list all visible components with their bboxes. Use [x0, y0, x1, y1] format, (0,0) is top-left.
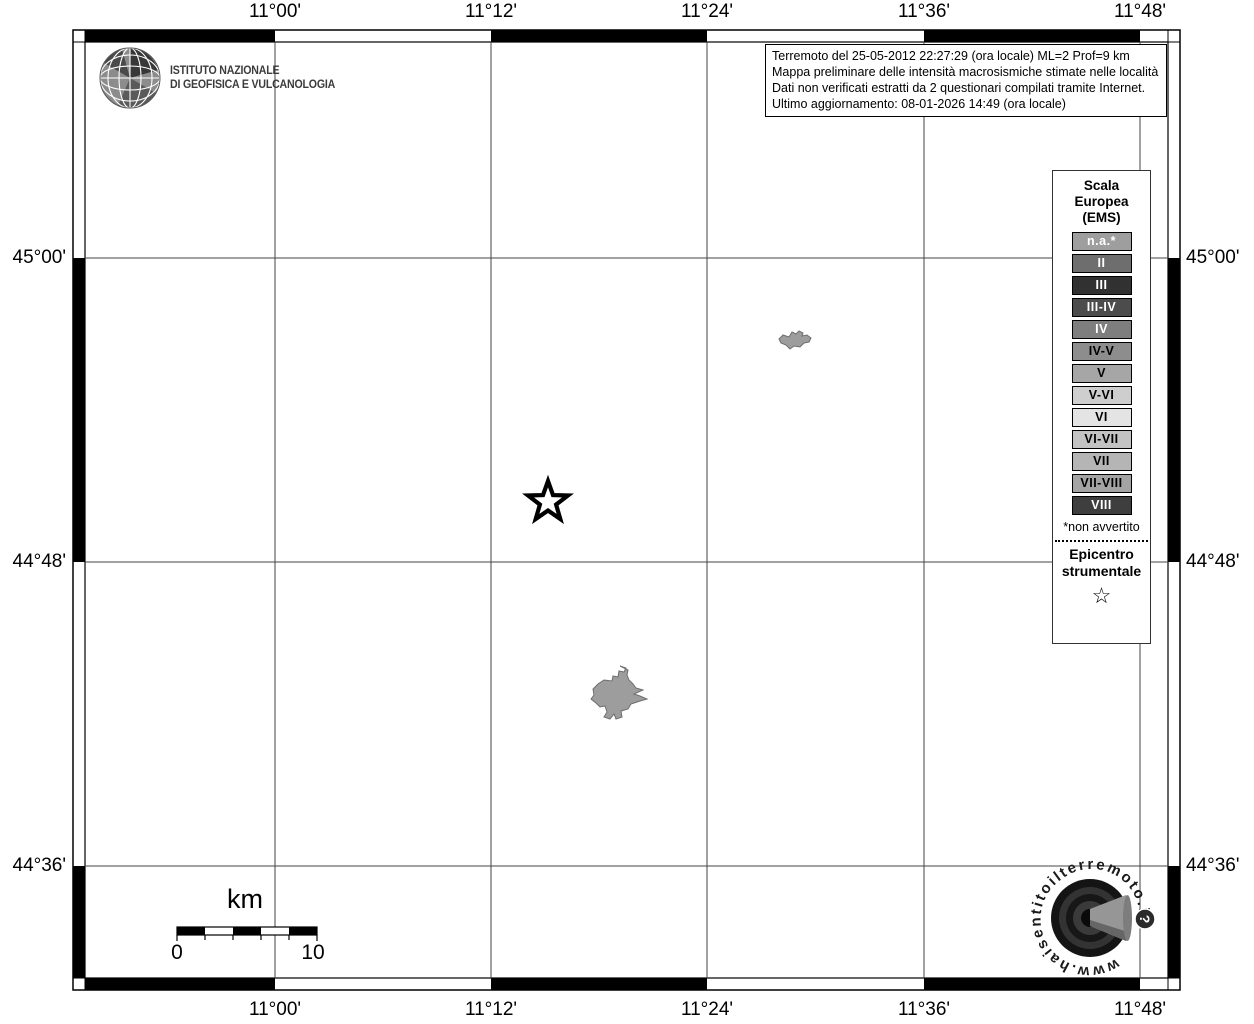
legend-swatch-iii-iv: III-IV [1072, 298, 1132, 317]
ingv-globe-icon [98, 46, 162, 110]
legend-swatch-ii: II [1072, 254, 1132, 273]
legend-title-line2: Europea [1053, 194, 1150, 210]
legend-epicenter-line2: strumentale [1053, 563, 1150, 580]
graticule [85, 42, 1168, 978]
legend-swatch-iii: III [1072, 276, 1132, 295]
scale-bar-unit: km [200, 884, 290, 915]
legend-swatch-v-vi: V-VI [1072, 386, 1132, 405]
haisentitoilterremoto-logo: www.haisentitoilterremoto.it ? [1030, 856, 1158, 984]
event-info-line1: Terremoto del 25-05-2012 22:27:29 (ora l… [772, 48, 1160, 64]
scale-bar-max: 10 [291, 941, 335, 965]
ingv-logo-line1: ISTITUTO NAZIONALE [170, 64, 335, 78]
event-info-line2: Mappa preliminare delle intensità macros… [772, 64, 1160, 80]
legend-swatch-iv: IV [1072, 320, 1132, 339]
map-frame [73, 30, 1180, 990]
legend-swatch-viii: VIII [1072, 496, 1132, 515]
ingv-logo-line2: DI GEOFISICA E VULCANOLOGIA [170, 78, 335, 92]
legend-epicenter-line1: Epicentro [1053, 546, 1150, 563]
legend-star-icon: ☆ [1053, 583, 1150, 609]
hsit-speaker-icon [1051, 879, 1132, 957]
intensity-legend: Scala Europea (EMS) n.a.* II III III-IV … [1052, 170, 1151, 644]
hsit-question-mark: ? [1137, 915, 1153, 924]
event-info-box: Terremoto del 25-05-2012 22:27:29 (ora l… [765, 44, 1167, 117]
event-info-line3: Dati non verificati estratti da 2 questi… [772, 80, 1160, 96]
legend-footnote: *non avvertito [1053, 520, 1150, 534]
legend-epicenter-label: Epicentro strumentale [1053, 546, 1150, 580]
scale-bar [177, 927, 317, 941]
epicenter-star-icon [528, 481, 568, 519]
legend-swatch-na: n.a.* [1072, 232, 1132, 251]
legend-swatch-vii-viii: VII-VIII [1072, 474, 1132, 493]
scale-bar-min: 0 [155, 941, 199, 965]
legend-swatch-vi: VI [1072, 408, 1132, 427]
legend-swatches: n.a.* II III III-IV IV IV-V V V-VI VI VI… [1053, 232, 1150, 515]
legend-swatch-iv-v: IV-V [1072, 342, 1132, 361]
legend-title: Scala Europea (EMS) [1053, 178, 1150, 226]
seismic-intensity-map-page: { "axis": { "top": ["11°00'", "11°12'", … [0, 0, 1254, 1024]
legend-swatch-vi-vii: VI-VII [1072, 430, 1132, 449]
legend-title-line1: Scala [1053, 178, 1150, 194]
ingv-logo-text: ISTITUTO NAZIONALE DI GEOFISICA E VULCAN… [170, 64, 335, 92]
locality-polygons [591, 331, 811, 719]
legend-swatch-v: V [1072, 364, 1132, 383]
locality-polygon-north [779, 331, 811, 349]
legend-divider [1055, 540, 1148, 542]
locality-polygon-south [591, 666, 647, 719]
legend-swatch-vii: VII [1072, 452, 1132, 471]
hsit-question-badge: ? [1135, 909, 1155, 929]
event-info-line4: Ultimo aggiornamento: 08-01-2026 14:49 (… [772, 96, 1160, 112]
legend-title-line3: (EMS) [1053, 210, 1150, 226]
